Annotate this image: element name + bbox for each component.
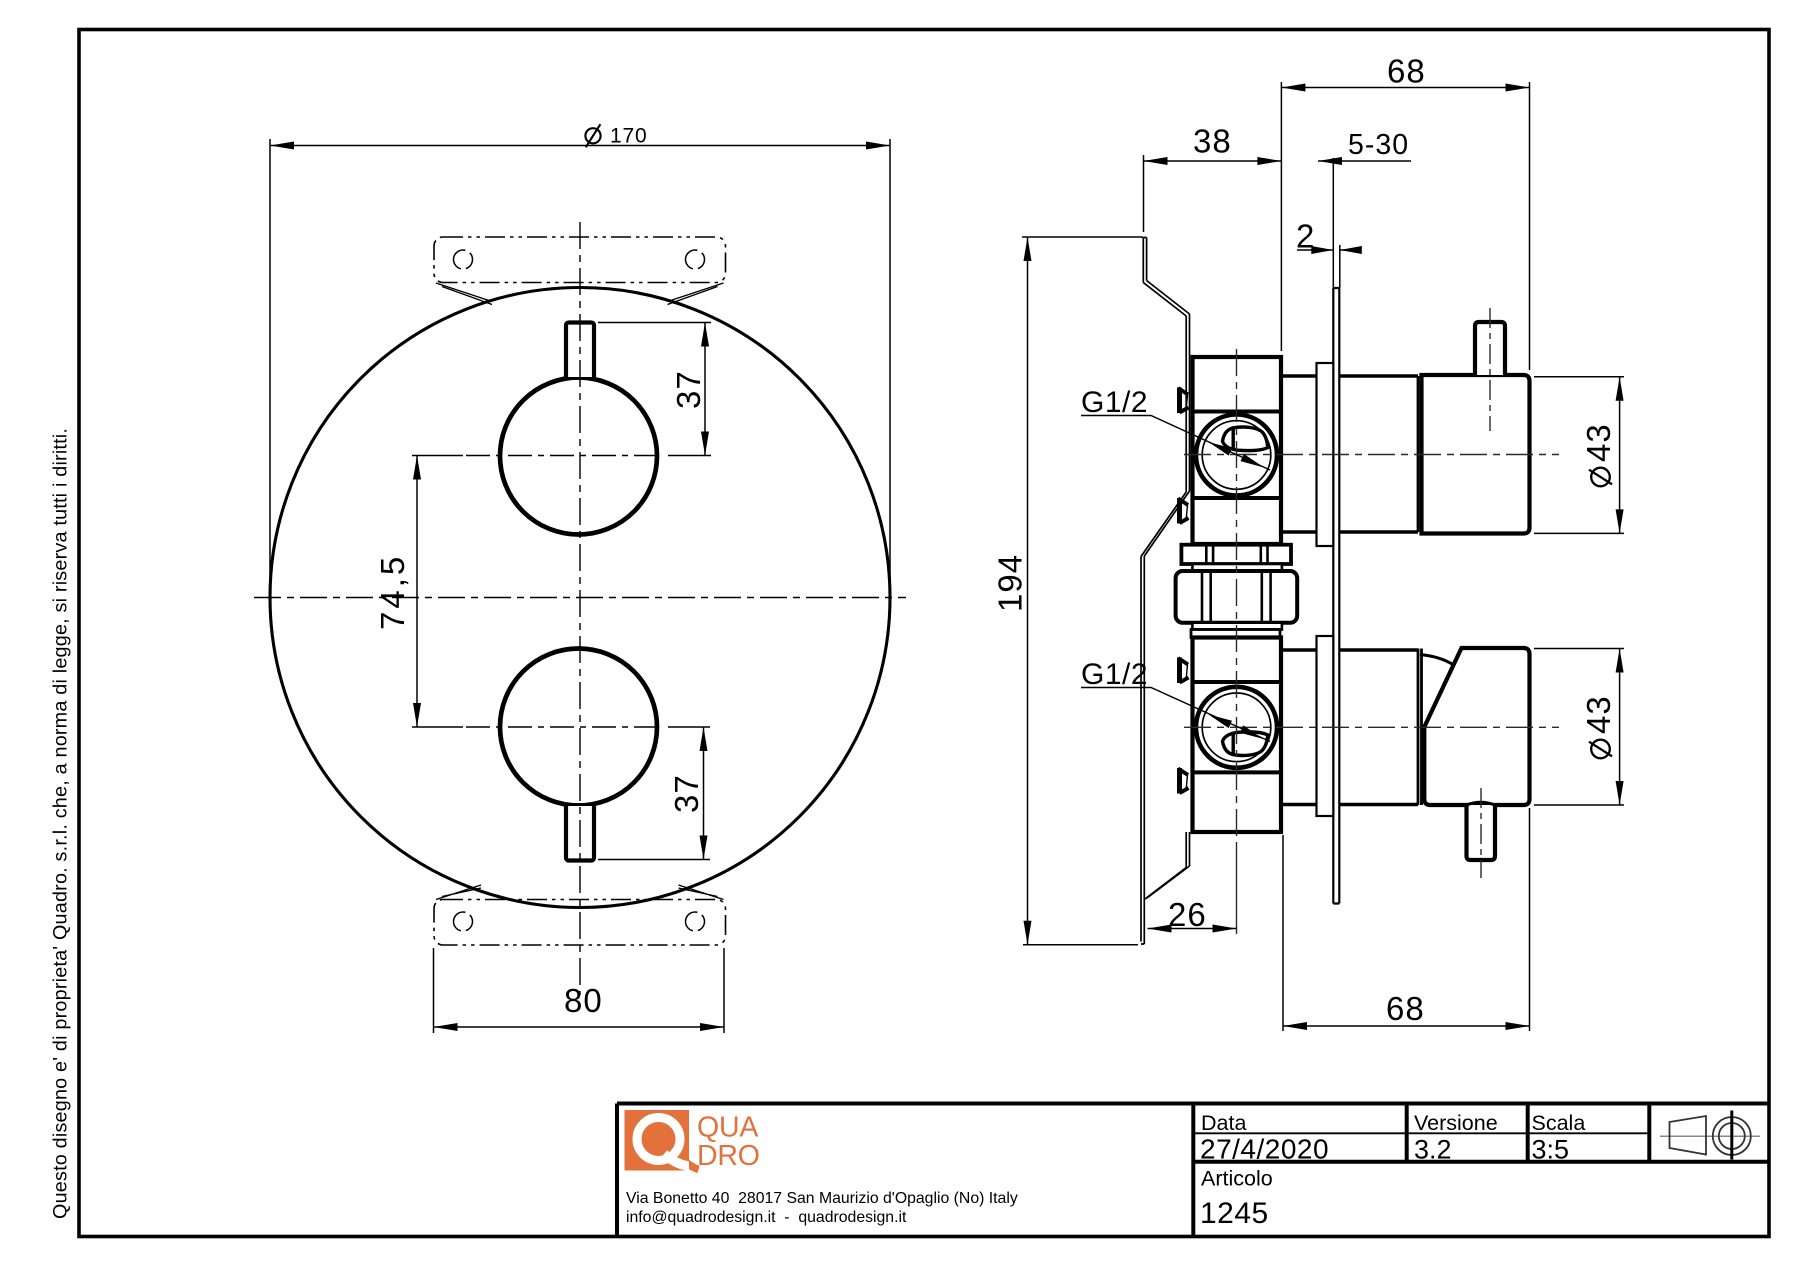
svg-text:info@quadrodesign.it - quadr: info@quadrodesign.it - quadrodesign.it — [626, 1209, 907, 1226]
svg-text:G1/2: G1/2 — [1081, 386, 1148, 419]
svg-text:Scala: Scala — [1532, 1111, 1586, 1135]
svg-text:Data: Data — [1201, 1111, 1246, 1135]
svg-text:G1/2: G1/2 — [1081, 658, 1148, 691]
svg-text:38: 38 — [1193, 123, 1232, 160]
svg-text:74,5: 74,5 — [374, 554, 411, 630]
svg-text:43: 43 — [1580, 423, 1617, 462]
svg-text:26: 26 — [1168, 896, 1207, 933]
svg-text:DRO: DRO — [697, 1140, 760, 1172]
svg-text:170: 170 — [610, 124, 647, 147]
svg-text:Via Bonetto 40 28017 San Maur: Via Bonetto 40 28017 San Maurizio d'Opag… — [626, 1190, 1018, 1207]
svg-text:Questo disegno e' di proprieta: Questo disegno e' di proprieta' Quadro. … — [50, 428, 72, 1219]
svg-text:2: 2 — [1296, 218, 1315, 255]
svg-text:Articolo: Articolo — [1201, 1167, 1273, 1191]
svg-text:27/4/2020: 27/4/2020 — [1200, 1134, 1329, 1165]
svg-text:3:5: 3:5 — [1532, 1135, 1570, 1165]
svg-text:68: 68 — [1387, 53, 1426, 90]
svg-text:3.2: 3.2 — [1414, 1135, 1452, 1165]
svg-text:1245: 1245 — [1200, 1197, 1269, 1230]
svg-text:68: 68 — [1386, 990, 1425, 1027]
svg-text:37: 37 — [670, 370, 707, 409]
svg-text:Versione: Versione — [1414, 1111, 1498, 1135]
svg-text:37: 37 — [668, 774, 705, 813]
svg-text:194: 194 — [992, 554, 1029, 612]
svg-text:QUA: QUA — [697, 1112, 758, 1144]
svg-text:80: 80 — [564, 982, 603, 1019]
svg-text:5-30: 5-30 — [1348, 129, 1409, 161]
svg-text:43: 43 — [1580, 695, 1617, 734]
